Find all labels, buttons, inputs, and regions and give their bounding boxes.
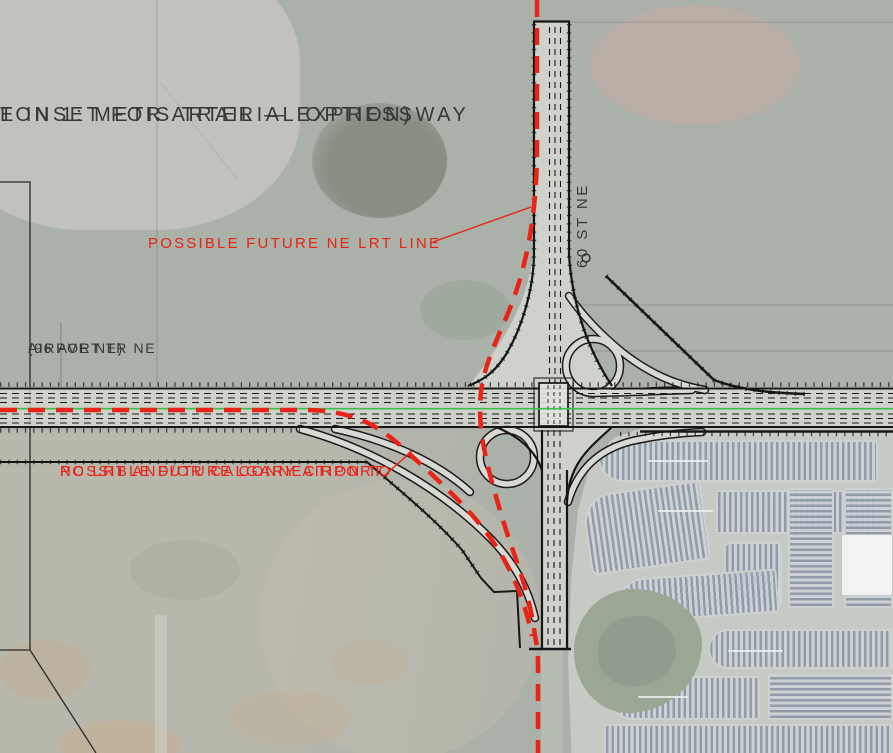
connection-dashed-line bbox=[0, 410, 532, 636]
plan-title-line2: E INSET FOR ARTERIAL OPTION) bbox=[0, 100, 413, 131]
interchange-bridge bbox=[534, 378, 573, 431]
annotation-lrt: POSSIBLE FUTURE NE LRT LINE bbox=[148, 233, 441, 256]
annotation-connection-line2: NC LRT AND/OR CALGARY AIRPORT bbox=[60, 461, 384, 484]
map-canvas[interactable]: TON 1: METIS TRAIL — EXPRESSWAY E INSET … bbox=[0, 0, 893, 753]
section-lines bbox=[61, 0, 893, 387]
lrt-leader-line bbox=[433, 207, 531, 242]
label-60-st: 60 ST NE bbox=[572, 183, 594, 268]
label-airport-trail-line2: (96 AVE NE) bbox=[28, 338, 124, 358]
